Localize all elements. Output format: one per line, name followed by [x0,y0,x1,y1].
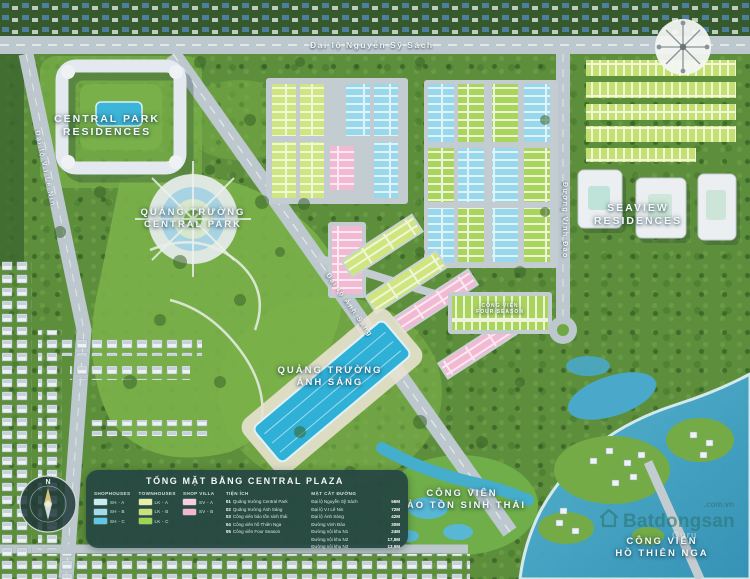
legend-swatch [94,499,107,505]
legend-swatch [139,509,152,515]
legend-swatch [139,499,152,505]
legend-swatch [183,499,196,505]
roundabout [549,316,577,344]
label-quang-truong-anh-sang: QUẢNG TRƯỜNG ÁNH SÁNG [278,365,383,389]
legend-group-townhouses: TOWNHOUSES LK - ALK - BLK - C [139,491,177,552]
legend-title: TỔNG MẶT BẰNG CENTRAL PLAZA [146,476,400,486]
legend-group-shophouses: SHOPHOUSES SH - ASH - BSH - C [94,491,132,552]
road-label-nguyen-sy-sach: Đại lộ Nguyễn Sỹ Sách [310,40,434,50]
label-cong-vien-four-season: CÔNG VIÊN FOUR SEASON [476,303,524,316]
label-cong-vien-bao-ton: CÔNG VIÊN BẢO TỒN SINH THÁI [398,488,526,512]
label-seaview-residences: SEAVIEW RESIDENCES [594,202,682,228]
legend-swatch [183,509,196,515]
road-label-vinh-dao: Đường Vinh Đào [561,182,568,259]
label-cong-vien-ho-thien-nga: CÔNG VIÊN HỒ THIÊN NGA [615,536,708,560]
legend-amenities: TIỆN ÍCH 01Quảng trường Central Park02Qu… [226,491,304,552]
legend-panel: TỔNG MẶT BẰNG CENTRAL PLAZA SHOPHOUSES S… [86,470,408,548]
legend-swatch [139,518,152,524]
legend-swatch [94,509,107,515]
legend-road-sections: MẶT CẮT ĐƯỜNG Đại lộ Nguyễn Sỹ Sách56MĐạ… [311,491,400,552]
compass-rose-icon [655,19,711,75]
svg-text:N: N [45,479,50,486]
label-central-park-residences: CENTRAL PARK RESIDENCES [54,113,160,139]
label-quang-truong-central-park: QUẢNG TRƯỜNG CENTRAL PARK [141,207,246,231]
compass-badge-icon: N [20,476,76,532]
legend-group-shop-villa: SHOP VILLA SV - ASV - B [183,491,219,552]
legend-swatch [94,518,107,524]
masterplan-map[interactable]: N Đại lộ Nguyễn Sỹ Sách Đại lộ V.I Lê Ni… [0,0,750,579]
